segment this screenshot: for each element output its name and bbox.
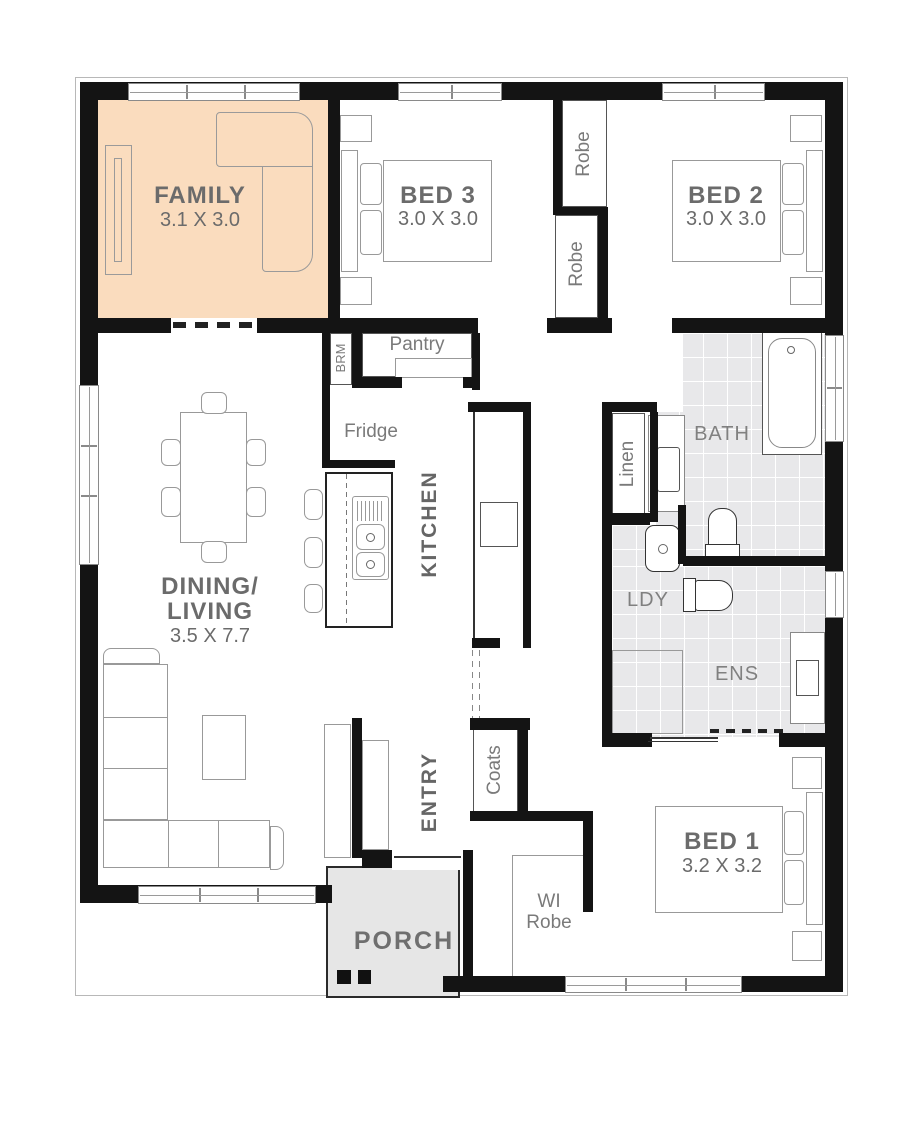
wall [362, 850, 392, 868]
label-porch: PORCH [314, 928, 494, 954]
label-kitchen: KITCHEN [415, 449, 445, 599]
label-bed3-dims: 3.0 X 3.0 [348, 209, 528, 230]
coffee-table [202, 715, 246, 780]
bar-stool [304, 489, 323, 520]
dining-chair [246, 487, 266, 517]
wall [825, 82, 843, 992]
window-mullion [199, 888, 201, 902]
window-mullion [451, 85, 453, 99]
island-overhang-line [346, 474, 347, 626]
window-mullion [257, 888, 259, 902]
wall [602, 402, 612, 740]
window-ensuite [825, 571, 844, 618]
living-sofa-chaise-arm [270, 826, 284, 870]
wall [352, 333, 362, 388]
wall [322, 460, 395, 468]
porch-post [358, 970, 371, 984]
label-brm: BRM [331, 328, 351, 388]
bar-stool [304, 584, 323, 613]
window-mullion [186, 85, 188, 99]
label-bed3: BED 3 [348, 183, 528, 208]
living-sofa-vertical [103, 664, 168, 820]
bed3-nightstand [340, 277, 372, 305]
label-dining-line1: DINING/ [120, 574, 300, 599]
bathtub-drain [787, 346, 795, 354]
wall [322, 333, 330, 468]
floor-plan: FAMILY 3.1 X 3.0 BED 3 3.0 X 3.0 BED 2 3… [0, 0, 912, 1144]
bed1-nightstand [792, 757, 822, 789]
wall [352, 718, 362, 858]
wall [472, 638, 500, 648]
wall [463, 868, 473, 985]
label-ensuite: ENS [687, 664, 787, 685]
wall [602, 402, 657, 412]
wall [683, 556, 825, 566]
sink-drainer [357, 501, 385, 521]
label-linen: Linen [615, 414, 641, 514]
window-bed2 [662, 83, 765, 101]
pantry-shelf [395, 358, 472, 378]
dining-chair [201, 541, 227, 563]
wall [362, 377, 402, 388]
bed1-nightstand [792, 931, 822, 961]
label-robe-bed2: Robe [571, 104, 597, 204]
ensuite-shower [612, 650, 683, 734]
laundry-drain [658, 544, 668, 554]
porch-post [337, 970, 351, 984]
oven-tower [480, 502, 518, 547]
wall [779, 733, 825, 747]
window-living [138, 886, 316, 904]
label-wi-robe-line2: Robe [509, 913, 589, 933]
window-mullion [714, 85, 716, 99]
label-coats: Coats [482, 725, 508, 815]
bar-stool [304, 537, 323, 568]
wall [602, 513, 650, 525]
window-mullion [81, 445, 97, 447]
bed2-nightstand [790, 277, 822, 305]
wall [602, 733, 652, 747]
front-door-opening [392, 850, 463, 870]
family-sofa-back [216, 112, 313, 167]
wall [650, 412, 658, 522]
ensuite-toilet-bowl [695, 580, 733, 611]
window-bed3 [398, 83, 502, 101]
family-opening-dashes [173, 322, 255, 328]
label-bed2-dims: 3.0 X 3.0 [636, 209, 816, 230]
dining-chair [201, 392, 227, 414]
wall [553, 100, 562, 207]
entry-console [362, 740, 389, 850]
entry-bulkhead-dash [472, 650, 473, 718]
bed3-nightstand [340, 115, 372, 142]
living-tv-unit [324, 724, 351, 858]
wall [463, 850, 473, 868]
bath-door-area [655, 333, 683, 412]
sliding-door [648, 741, 718, 742]
wall [518, 730, 528, 818]
sofa-seam [104, 768, 167, 769]
bath-basin [657, 447, 680, 492]
window-mullion [685, 978, 687, 991]
window-family [128, 83, 300, 101]
label-wi-robe-line1: WI [509, 892, 589, 912]
sliding-door [650, 737, 718, 739]
label-bed2: BED 2 [636, 183, 816, 208]
label-bath: BATH [672, 424, 772, 445]
label-laundry: LDY [598, 590, 698, 611]
label-bed1: BED 1 [632, 829, 812, 854]
bathtub-inner [768, 338, 816, 448]
sofa-seam [104, 717, 167, 718]
window-bed1 [565, 976, 742, 993]
wir-boundary-line [512, 855, 583, 856]
dining-chair [161, 487, 181, 517]
label-bed1-dims: 3.2 X 3.2 [632, 856, 812, 877]
wall [598, 215, 608, 318]
door-opening-bed2 [612, 318, 672, 333]
label-fridge: Fridge [321, 422, 421, 442]
sofa-seam [168, 821, 169, 867]
label-family-dims: 3.1 X 3.0 [110, 210, 290, 231]
label-dining-dims: 3.5 X 7.7 [120, 626, 300, 647]
sofa-seam [218, 821, 219, 867]
wall [328, 100, 340, 318]
entry-bulkhead-dash [479, 650, 480, 718]
label-pantry: Pantry [367, 335, 467, 355]
front-door-leaf [394, 856, 461, 858]
window-mullion [625, 978, 627, 991]
ensuite-basin [796, 660, 819, 696]
label-family: FAMILY [110, 183, 290, 208]
window-bath [825, 335, 844, 442]
living-sofa-arm [103, 648, 160, 664]
sink-drain [366, 560, 375, 569]
dining-chair [246, 439, 266, 466]
wall [468, 402, 531, 412]
ensuite-ceiling-dash [710, 729, 788, 733]
dining-table [180, 412, 247, 543]
sink-drain [366, 533, 375, 542]
window-mullion [244, 85, 246, 99]
window-dining [79, 385, 99, 565]
label-entry: ENTRY [415, 732, 445, 852]
bath-toilet-bowl [708, 508, 737, 548]
bed2-nightstand [790, 115, 822, 142]
label-dining-line2: LIVING [120, 599, 300, 624]
living-sofa-horizontal [103, 820, 270, 868]
dining-chair [161, 439, 181, 466]
label-robe-bed3: Robe [564, 214, 590, 314]
door-opening-bed3 [478, 318, 547, 333]
window-mullion [827, 387, 842, 389]
wall [463, 377, 480, 388]
window-mullion [81, 495, 97, 497]
wall [523, 412, 531, 648]
